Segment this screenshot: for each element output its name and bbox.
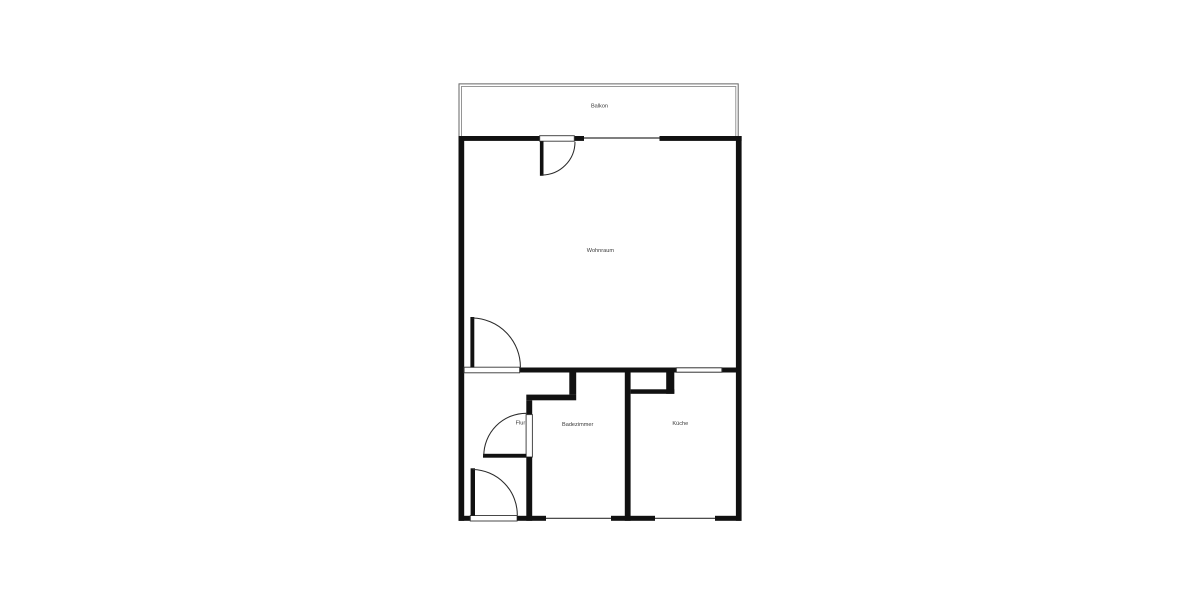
svg-text:Flur: Flur bbox=[516, 421, 526, 427]
svg-text:Wohnraum: Wohnraum bbox=[587, 248, 615, 254]
svg-text:Küche: Küche bbox=[672, 421, 688, 427]
svg-text:Balkon: Balkon bbox=[591, 104, 608, 110]
svg-text:Badezimmer: Badezimmer bbox=[562, 422, 594, 428]
